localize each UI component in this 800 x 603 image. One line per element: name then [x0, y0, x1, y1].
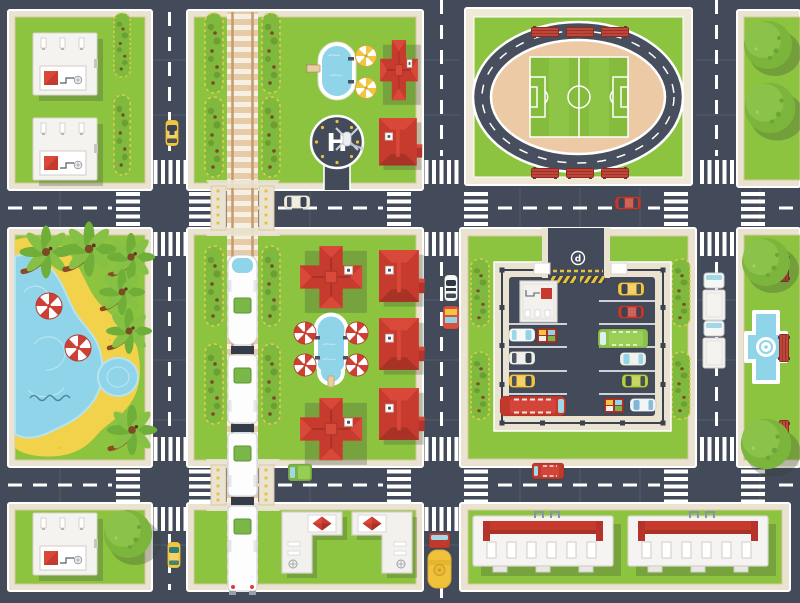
white-sedan	[284, 196, 310, 209]
block-parking-lot: d	[460, 228, 696, 467]
hedgerow	[262, 344, 280, 424]
block-top-far-right	[737, 10, 800, 187]
green-camper	[288, 464, 312, 481]
red-sedan	[615, 197, 641, 210]
palm-tree	[107, 233, 155, 281]
hedgerow	[114, 95, 130, 175]
courtyard-pool	[314, 313, 349, 388]
taxi-north	[166, 120, 179, 146]
lime-car	[622, 375, 648, 388]
hedgerow	[471, 259, 489, 326]
hedgerow	[205, 344, 223, 424]
pond	[98, 358, 138, 396]
palm-tree	[61, 221, 116, 276]
hedgerow	[262, 97, 280, 177]
palm-tree	[107, 405, 158, 456]
train-tail-car	[228, 506, 257, 595]
parking-sign-letter: d	[575, 255, 581, 265]
delivery-van	[509, 329, 535, 342]
hazard-stripe	[580, 276, 605, 283]
white-car	[620, 353, 646, 366]
hedgerow	[672, 259, 690, 326]
taxi	[509, 375, 535, 388]
red-roof-house	[379, 388, 425, 445]
gate-post	[534, 263, 550, 274]
taxi	[618, 283, 644, 296]
warehouse	[473, 512, 621, 576]
train-car	[228, 355, 257, 423]
hedgerow	[205, 246, 223, 326]
warehouse	[628, 512, 776, 576]
taxi-south	[168, 542, 181, 568]
palm-tree	[106, 308, 152, 354]
train-car	[228, 433, 257, 496]
food-truck	[443, 306, 459, 329]
gate-post	[611, 263, 627, 274]
block-stadium	[465, 8, 692, 185]
block-top-left	[8, 10, 152, 190]
red-car	[618, 306, 644, 319]
passenger-train	[228, 255, 257, 595]
pool-ladder	[348, 57, 354, 61]
office-building	[33, 118, 103, 186]
red-roof-house	[379, 250, 425, 307]
hedgerow	[672, 352, 690, 419]
hedgerow	[205, 13, 223, 93]
taillight	[231, 585, 235, 589]
crate-truck	[537, 328, 557, 343]
red-roof-house	[380, 40, 421, 105]
white-car	[509, 352, 535, 365]
office-building	[33, 513, 103, 581]
train-coupling	[231, 346, 254, 354]
pool-ladder	[348, 80, 354, 84]
parking-kiosk	[520, 281, 557, 322]
city-map-poster: H	[0, 0, 800, 603]
white-blue-car	[630, 399, 656, 412]
train-coupling	[231, 497, 254, 505]
red-roof-house	[300, 246, 367, 313]
block-bottom-right	[460, 503, 790, 591]
block-fountain-plaza	[737, 228, 800, 477]
train-coupling	[231, 424, 254, 432]
block-top-center: H	[187, 10, 423, 190]
red-roof-house	[379, 118, 422, 170]
red-bus	[500, 396, 566, 416]
tanker-truck	[428, 533, 451, 588]
red-roof-house	[300, 398, 367, 465]
hedgerow	[205, 97, 223, 177]
red-minibus	[532, 463, 564, 479]
cargo-truck	[703, 273, 725, 320]
hedgerow	[471, 352, 489, 419]
crate-truck	[604, 398, 624, 413]
taillight	[250, 585, 254, 589]
police-car	[445, 275, 458, 301]
pool-steps	[328, 376, 334, 387]
red-roof-house	[379, 318, 425, 375]
soccer-field	[530, 57, 628, 137]
office-building	[33, 33, 103, 101]
block-bottom-left	[8, 503, 161, 591]
hedgerow	[262, 246, 280, 326]
block-mid-center	[187, 228, 425, 467]
block-bottom-center	[187, 503, 423, 591]
cargo-truck	[703, 321, 725, 368]
plaza-bench	[778, 334, 790, 362]
hedgerow	[262, 13, 280, 93]
city-map-svg: H	[0, 0, 800, 603]
train-front-car	[228, 255, 257, 345]
green-bus	[598, 329, 648, 348]
palm-tree	[99, 269, 145, 315]
block-beach	[8, 221, 157, 467]
hedgerow	[114, 13, 130, 77]
diving-board	[307, 65, 320, 72]
